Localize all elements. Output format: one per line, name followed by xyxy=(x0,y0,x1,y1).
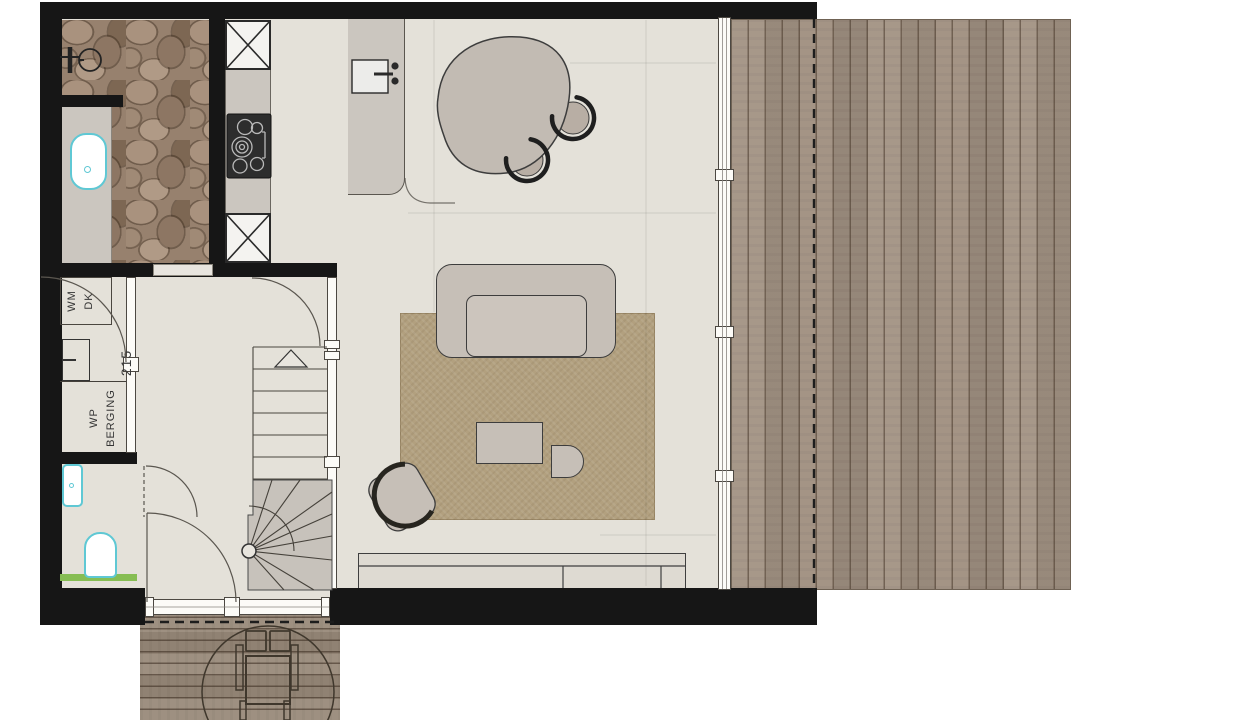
washbasin-drain xyxy=(84,166,91,173)
floor-plan: WM DK WP BERGING 215 xyxy=(0,0,1236,720)
washbasin xyxy=(70,133,107,190)
wall-kitchen-column xyxy=(209,19,225,265)
east-terrace-deck xyxy=(731,19,1071,590)
sideboard xyxy=(358,553,686,589)
wall-wc-north xyxy=(40,452,137,464)
wall-south-west xyxy=(40,588,145,625)
label-dimension-215: 215 xyxy=(118,350,134,376)
east-window-wall xyxy=(718,17,731,590)
label-wp: WP xyxy=(86,408,103,428)
wall-north xyxy=(40,2,817,19)
coffee-table xyxy=(476,422,543,464)
bathroom-door-threshold xyxy=(153,264,213,276)
wall-west xyxy=(40,2,62,604)
label-wm: WM xyxy=(64,290,81,312)
entry-floor xyxy=(137,560,330,602)
kitchen-wall-counter xyxy=(225,68,271,215)
partition-mullion xyxy=(324,456,340,468)
side-table xyxy=(551,445,584,478)
label-washer-dryer: WM DK xyxy=(64,290,98,312)
partition-mullion xyxy=(324,340,340,349)
wall-south-east xyxy=(330,588,817,625)
wc-handbasin-drain xyxy=(69,483,74,488)
entry-frame-end xyxy=(321,597,330,617)
entry-door-post xyxy=(224,597,240,617)
wall-vanity-stub xyxy=(62,95,123,107)
label-storage: WP BERGING xyxy=(86,389,120,447)
entry-porch-deck xyxy=(140,615,340,720)
kitchen-tall-cabinet-top xyxy=(225,20,271,70)
label-berging: BERGING xyxy=(103,389,120,447)
label-dk: DK xyxy=(81,292,98,309)
heat-pump-tick xyxy=(62,359,76,361)
window-mullion xyxy=(715,169,734,181)
partition-mullion xyxy=(324,351,340,360)
toilet xyxy=(84,532,117,578)
storage-divider-line xyxy=(60,381,126,382)
window-mullion xyxy=(715,326,734,338)
kitchen-island-counter xyxy=(348,19,405,195)
kitchen-tall-cabinet-bottom xyxy=(225,213,271,263)
window-mullion xyxy=(715,470,734,482)
hall-partition-east xyxy=(327,277,337,589)
sofa-seat xyxy=(466,295,587,357)
entry-frame-end xyxy=(145,597,154,617)
